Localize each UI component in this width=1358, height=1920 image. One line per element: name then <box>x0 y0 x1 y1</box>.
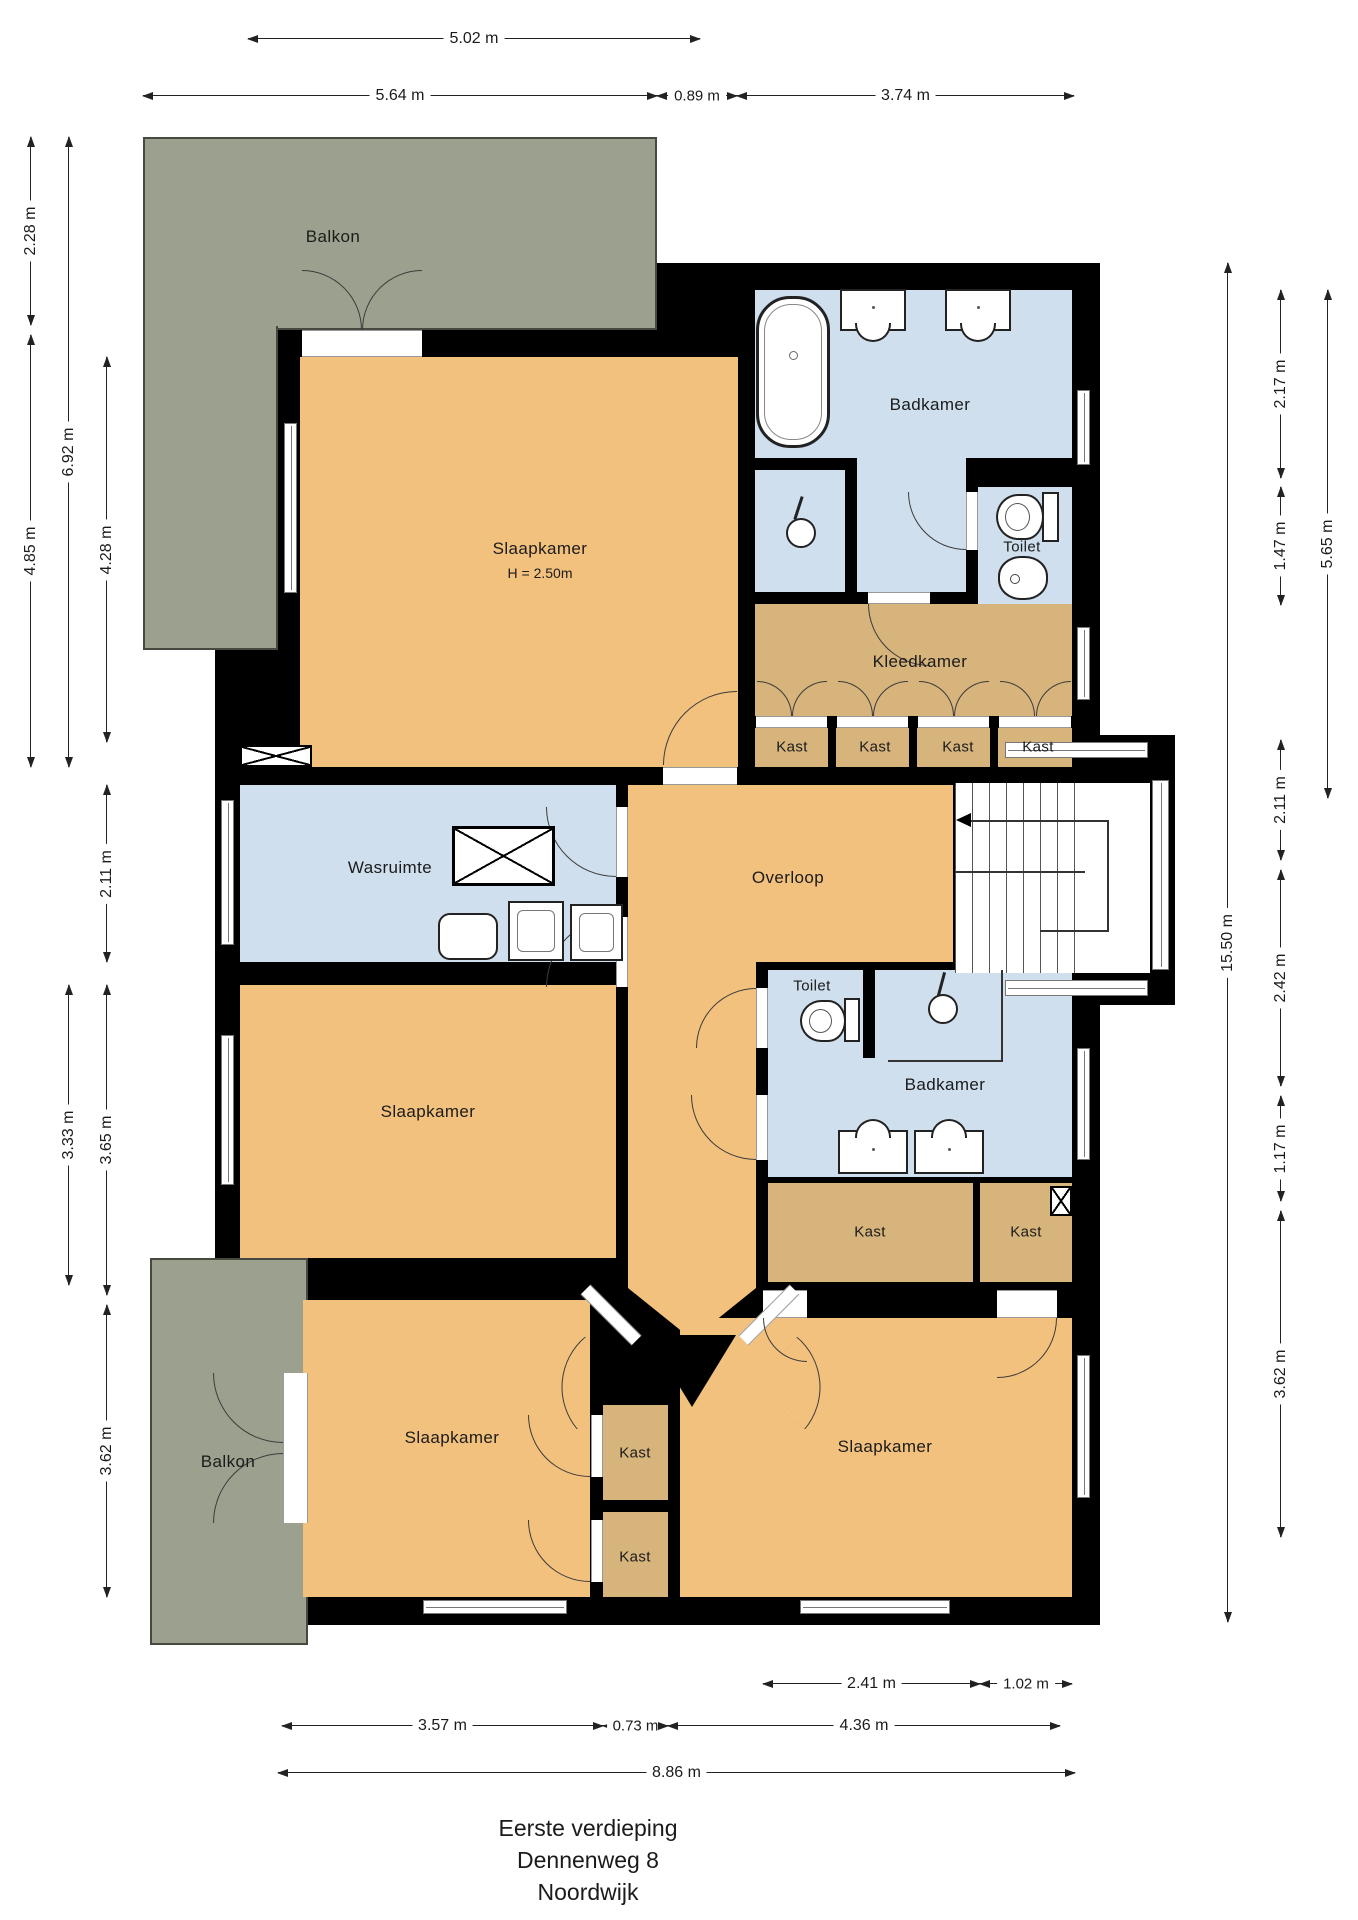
dimension-right-2.42: 2.42 m <box>1280 870 1281 1086</box>
toilet-icon-toilet2 <box>800 1000 846 1042</box>
dimension-label: 5.65 m <box>1319 514 1337 575</box>
shaft-crossbox-icon <box>1050 1186 1072 1216</box>
dimension-right-5.65: 5.65 m <box>1327 290 1328 798</box>
dimension-top-5.02: 5.02 m <box>248 38 700 39</box>
dimension-right-1.17: 1.17 m <box>1280 1096 1281 1201</box>
door-opening-kast-7 <box>591 1415 603 1477</box>
dryer-icon <box>570 904 623 961</box>
door-opening-kast-2 <box>837 716 908 728</box>
sink-icon-badkamer2-b <box>914 1130 984 1174</box>
room-label-balkon-bottom: Balkon <box>201 1452 255 1472</box>
room-label-kast-5: Kast <box>854 1224 886 1241</box>
window-badkamer1-right <box>1077 390 1090 465</box>
door-opening-kast-4 <box>999 716 1071 728</box>
door-opening-kast-3 <box>918 716 989 728</box>
floorplan-canvas: Balkon Slaapkamer H = 2.50m Badkamer Toi… <box>0 0 1358 1920</box>
door-opening-kast-6 <box>997 1290 1057 1318</box>
dimension-bottom-3.57: 3.57 m <box>282 1725 603 1726</box>
room-label-kast-6: Kast <box>1010 1224 1042 1241</box>
door-opening-kast-1 <box>756 716 827 728</box>
bidet-icon-toilet1 <box>998 556 1048 600</box>
room-label-kleedkamer: Kleedkamer <box>873 652 968 672</box>
dimension-label: 5.64 m <box>370 87 431 105</box>
shower-head-icon-badkamer1 <box>786 518 816 548</box>
dimension-label: 15.50 m <box>1219 908 1237 978</box>
door-opening-balcony-bottom <box>283 1373 308 1523</box>
room-label-kast-8: Kast <box>619 1549 651 1566</box>
room-label-badkamer-2: Badkamer <box>905 1075 986 1095</box>
window-slaapkamer-bl-bottom <box>423 1600 567 1614</box>
dimension-label: 5.02 m <box>444 30 505 48</box>
door-opening-kleedkamer <box>868 592 930 604</box>
room-label-toilet-1: Toilet <box>1003 539 1040 556</box>
dimension-right-2.17: 2.17 m <box>1280 290 1281 478</box>
dimension-left-4.28: 4.28 m <box>106 357 107 742</box>
door-opening-toilet-1 <box>966 492 978 550</box>
door-opening-toilet-2 <box>756 988 768 1048</box>
sink-icon-badkamer2-a <box>838 1130 908 1174</box>
dimension-right-15.50: 15.50 m <box>1227 263 1228 1622</box>
window-kleedkamer-right <box>1077 627 1090 700</box>
dimension-bottom-0.73: 0.73 m <box>603 1725 668 1726</box>
window-slaapkamer-br-right <box>1077 1355 1090 1498</box>
door-opening-master-overloop <box>663 767 737 785</box>
window-slaapkamer-br-bottom <box>800 1600 950 1614</box>
dimension-label: 4.85 m <box>22 521 40 582</box>
dimension-top-3.74: 3.74 m <box>737 95 1074 96</box>
room-label-kast-1: Kast <box>776 739 808 756</box>
room-label-toilet-2: Toilet <box>793 978 830 995</box>
wall-shower-stub-h <box>755 458 855 470</box>
dimension-bottom-1.02: 1.02 m <box>980 1683 1072 1684</box>
room-label-badkamer-1: Badkamer <box>890 395 971 415</box>
door-opening-badkamer-2 <box>756 1095 768 1160</box>
dimension-label: 0.73 m <box>607 1718 665 1735</box>
dimension-label: 2.41 m <box>841 1675 902 1693</box>
dimension-right-1.47: 1.47 m <box>1280 487 1281 605</box>
room-slaapkamer-master <box>300 357 738 767</box>
toilet-icon-toilet1 <box>996 494 1044 540</box>
room-sublabel-ceiling-height: H = 2.50m <box>508 565 573 581</box>
room-label-slaapkamer-mid: Slaapkamer <box>381 1102 476 1122</box>
room-label-kast-2: Kast <box>859 739 891 756</box>
toilet-tank-icon-toilet2 <box>844 998 860 1042</box>
dimension-label: 4.28 m <box>98 519 116 580</box>
dimension-left-3.65: 3.65 m <box>106 985 107 1295</box>
door-opening-wasruimte <box>616 807 628 877</box>
dimension-left-2.28: 2.28 m <box>30 137 31 325</box>
dimension-left-2.11: 2.11 m <box>106 785 107 962</box>
dimension-left-6.92: 6.92 m <box>68 137 69 767</box>
dimension-label: 1.17 m <box>1272 1118 1290 1179</box>
toilet-tank-icon-toilet1 <box>1042 492 1059 542</box>
dimension-label: 2.42 m <box>1272 948 1290 1009</box>
wall-shower-stub-v <box>845 470 857 588</box>
room-label-kast-7: Kast <box>619 1445 651 1462</box>
shower-head-icon-badkamer2 <box>928 994 958 1024</box>
dimension-right-3.62: 3.62 m <box>1280 1211 1281 1537</box>
vent-crossbox-icon <box>240 745 312 767</box>
dimension-label: 2.17 m <box>1272 354 1290 415</box>
dimension-label: 1.47 m <box>1272 516 1290 577</box>
door-opening-kast-8 <box>591 1520 603 1582</box>
washer-icon <box>508 901 564 961</box>
stairs-direction-line-right <box>1107 820 1109 932</box>
stairs-treads <box>955 783 1085 973</box>
dimension-label: 8.86 m <box>646 1764 707 1782</box>
stairs-direction-arrow-icon <box>956 813 971 827</box>
sink-icon-badkamer1-a <box>840 289 906 331</box>
stairs-direction-line-bottom <box>1040 930 1108 932</box>
window-badkamer2-right <box>1077 1048 1090 1160</box>
dimension-label: 2.11 m <box>98 844 116 904</box>
dimension-label: 3.57 m <box>412 1717 473 1735</box>
dimension-label: 0.89 m <box>668 88 726 105</box>
dimension-label: 6.92 m <box>60 422 78 483</box>
dimension-label: 2.11 m <box>1272 770 1290 830</box>
door-opening-balcony-top <box>302 330 422 357</box>
room-label-kast-3: Kast <box>942 739 974 756</box>
dimension-left-3.62: 3.62 m <box>106 1305 107 1597</box>
room-label-kast-4: Kast <box>1022 739 1054 756</box>
dimension-right-2.11: 2.11 m <box>1280 740 1281 860</box>
dimension-left-4.85: 4.85 m <box>30 335 31 767</box>
dimension-top-5.64: 5.64 m <box>143 95 657 96</box>
dimension-label: 4.36 m <box>834 1717 895 1735</box>
dimension-label: 3.65 m <box>98 1110 116 1171</box>
plan-title-city: Noordwijk <box>398 1876 778 1908</box>
dimension-label: 3.62 m <box>1272 1344 1290 1405</box>
stairs-landing <box>1085 783 1150 973</box>
plan-title-block: Eerste verdieping Dennenweg 8 Noordwijk <box>398 1812 778 1908</box>
room-label-balkon-top: Balkon <box>306 227 360 247</box>
dimension-label: 3.33 m <box>60 1105 78 1166</box>
dimension-top-0.89: 0.89 m <box>657 95 737 96</box>
room-label-slaapkamer-bottomright: Slaapkamer <box>838 1437 933 1457</box>
plan-title-floor: Eerste verdieping <box>398 1812 778 1844</box>
stairs-direction-line-top <box>968 820 1108 822</box>
dimension-label: 2.28 m <box>22 201 40 262</box>
room-label-overloop: Overloop <box>752 868 824 888</box>
stairbay-window-right <box>1152 780 1169 970</box>
dimension-label: 3.74 m <box>875 87 936 105</box>
sink-icon-wasruimte <box>438 913 498 960</box>
dimension-left-3.33: 3.33 m <box>68 985 69 1285</box>
dimension-bottom-2.41: 2.41 m <box>763 1683 980 1684</box>
room-label-slaapkamer-bottomleft: Slaapkamer <box>405 1428 500 1448</box>
window-wasruimte-left <box>221 800 234 945</box>
dimension-bottom-8.86: 8.86 m <box>278 1772 1075 1773</box>
plan-title-street: Dennenweg 8 <box>398 1844 778 1876</box>
window-master-left <box>284 423 297 593</box>
window-slaapkamer-mid-left <box>221 1035 234 1185</box>
bathtub-icon <box>756 296 830 448</box>
dimension-bottom-4.36: 4.36 m <box>668 1725 1060 1726</box>
balcony-top-strip <box>143 326 278 650</box>
room-label-wasruimte: Wasruimte <box>348 858 432 878</box>
sink-icon-badkamer1-b <box>945 289 1011 331</box>
stairs-flight-divider <box>955 871 1085 873</box>
dimension-label: 3.62 m <box>98 1421 116 1482</box>
closet-crossbox-icon-wasruimte <box>452 826 555 886</box>
dimension-label: 1.02 m <box>997 1676 1055 1693</box>
stairbay-window-bottom <box>1005 980 1148 996</box>
room-label-slaapkamer-master: Slaapkamer <box>493 539 588 559</box>
